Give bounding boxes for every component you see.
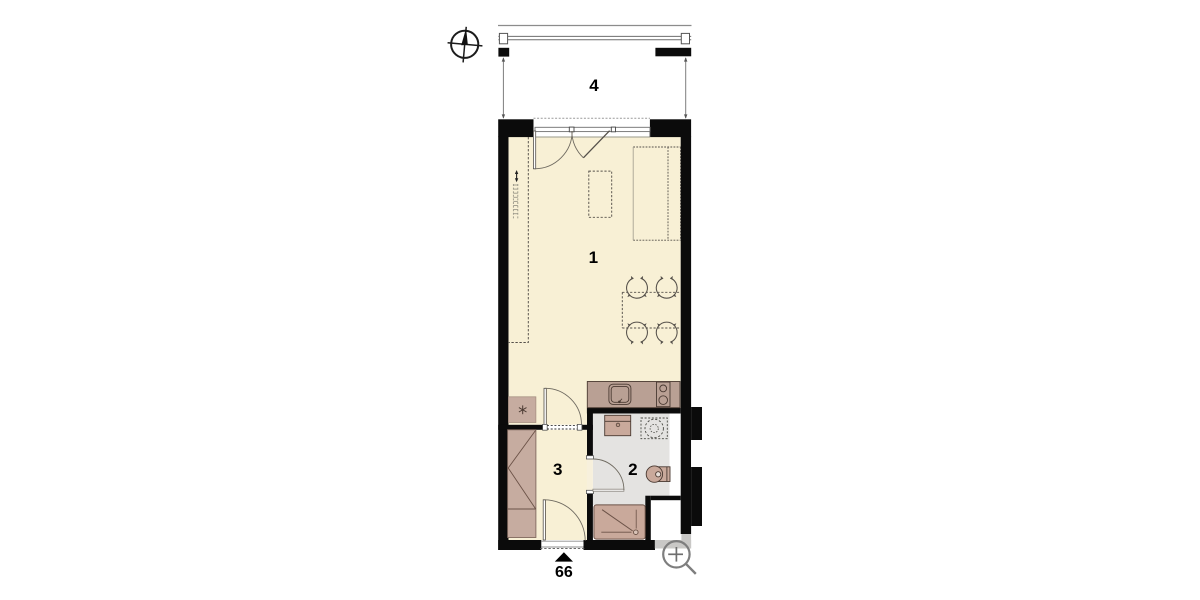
svg-text:1: 1: [589, 248, 598, 267]
svg-text:2: 2: [628, 460, 637, 479]
svg-text:4: 4: [589, 76, 599, 95]
svg-text:66: 66: [555, 564, 573, 581]
svg-text:3: 3: [553, 460, 562, 479]
